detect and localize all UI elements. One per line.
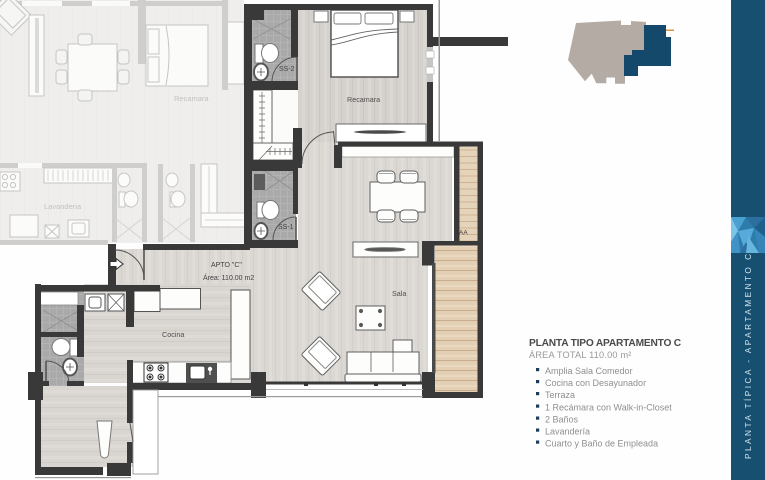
svg-text:2 Baños: 2 Baños (545, 415, 579, 425)
svg-text:Recamara: Recamara (347, 95, 380, 104)
svg-text:PLANTA TIPO APARTAMENTO C: PLANTA TIPO APARTAMENTO C (529, 338, 682, 349)
svg-text:Cuarto y Baño de Empleada: Cuarto y Baño de Empleada (545, 439, 658, 449)
svg-text:Amplia Sala Comedor: Amplia Sala Comedor (545, 366, 633, 376)
svg-text:PLANTA TÍPICA - APARTAMENTO C: PLANTA TÍPICA - APARTAMENTO C (743, 251, 753, 459)
svg-text:1 Recámara con Walk-in-Closet: 1 Recámara con Walk-in-Closet (545, 403, 672, 413)
svg-text:Terraza: Terraza (545, 390, 575, 400)
svg-text:AA: AA (459, 230, 468, 237)
svg-text:Lavandería: Lavandería (545, 427, 590, 437)
svg-text:Área: 110.00 m2: Área: 110.00 m2 (203, 273, 254, 282)
svg-text:ÁREA TOTAL 110.00 m²: ÁREA TOTAL 110.00 m² (529, 350, 632, 360)
svg-text:APTO "C": APTO "C" (211, 262, 242, 269)
svg-text:SS-2: SS-2 (279, 66, 295, 73)
svg-text:SS-1: SS-1 (278, 224, 294, 231)
svg-text:Recamara: Recamara (174, 94, 209, 103)
svg-text:Cocina: Cocina (162, 330, 184, 339)
svg-text:Sala: Sala (392, 289, 406, 298)
svg-text:Cocina con Desayunador: Cocina con Desayunador (545, 378, 646, 388)
svg-text:Lavanderia: Lavanderia (44, 202, 82, 211)
